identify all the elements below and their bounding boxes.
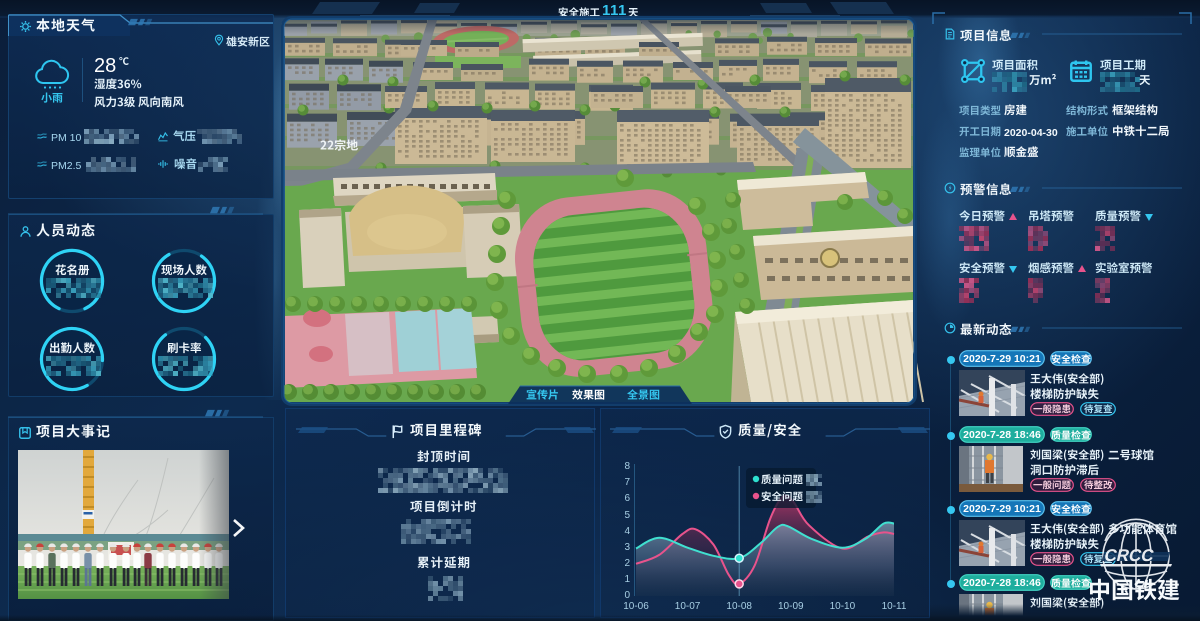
svg-text:CRCC: CRCC <box>1103 545 1156 565</box>
